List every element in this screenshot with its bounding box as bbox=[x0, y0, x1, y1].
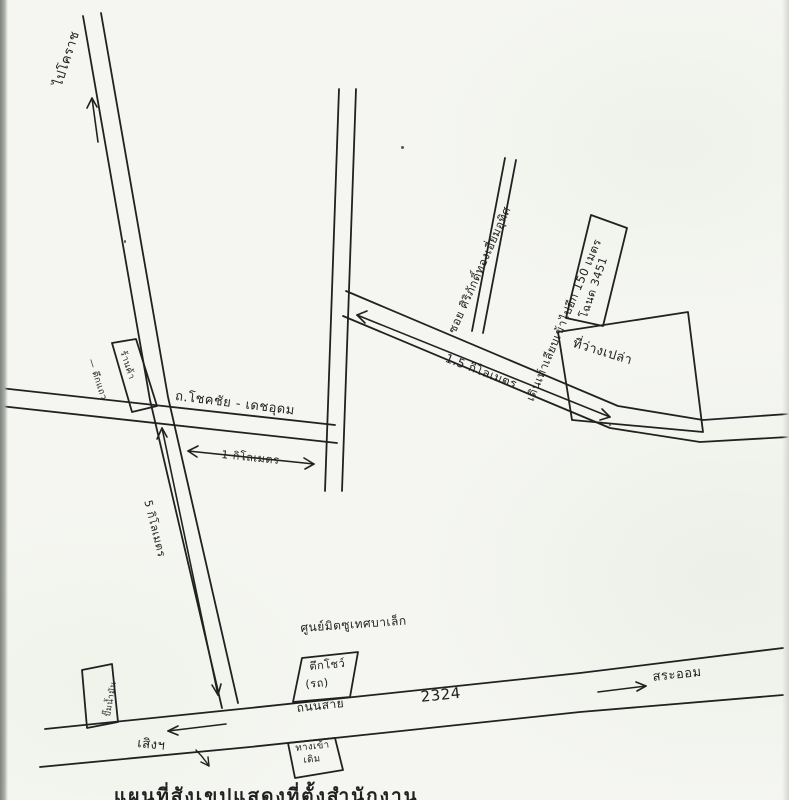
hand-drawn-map-scan: ไปโคราช ถ.โชคชัย - เดชอุดม 1 กิโลเมตร 5 … bbox=[0, 0, 789, 800]
north-road-lines bbox=[83, 13, 238, 708]
showroom-label-line1: ตึกโชว์ bbox=[309, 658, 346, 673]
scan-edge-left bbox=[0, 0, 8, 800]
showroom-label-line2: (รถ) bbox=[305, 677, 329, 691]
scan-speck bbox=[401, 146, 404, 149]
east-arrow-icon bbox=[598, 682, 646, 692]
scan-speck bbox=[609, 424, 611, 426]
old-entrance-label-line2: เดิม bbox=[303, 754, 321, 766]
scan-speck bbox=[124, 240, 126, 243]
direction-west-label: เสิงฯ bbox=[137, 737, 166, 753]
west-arrow-icon bbox=[168, 724, 226, 735]
empty-land-shape bbox=[558, 312, 703, 432]
clipped-caption: แผนที่สังเขปแสดงที่ตั้งสำนักงาน bbox=[114, 787, 419, 800]
vertical-road-lines bbox=[325, 89, 356, 491]
scan-edge-right bbox=[782, 0, 789, 800]
north-road-arrow-icon bbox=[87, 98, 98, 142]
